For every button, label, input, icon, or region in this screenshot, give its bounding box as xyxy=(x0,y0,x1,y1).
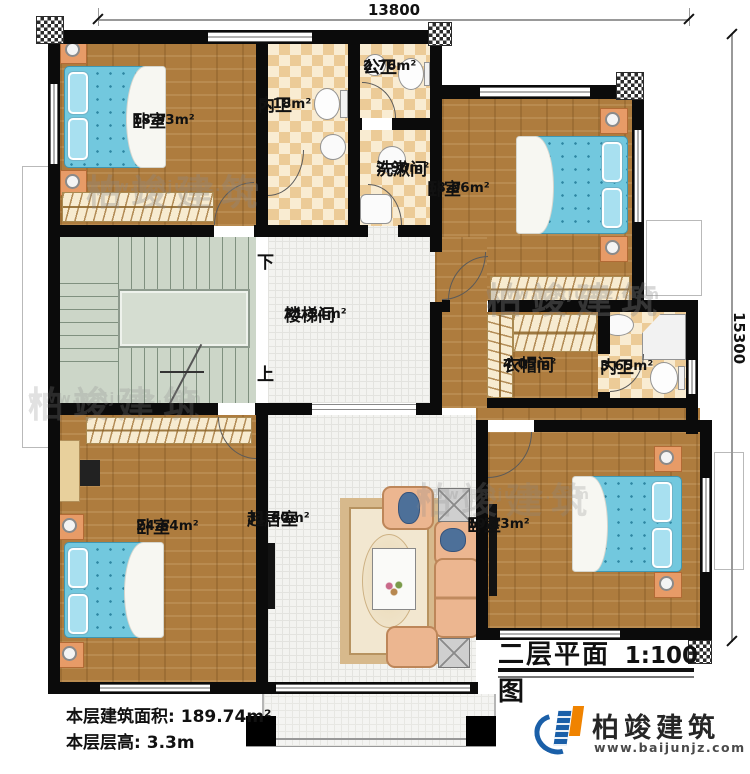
nightstand xyxy=(654,446,682,472)
floor-height-stats: 本层层高: 3.3m xyxy=(66,728,195,753)
nightstand xyxy=(600,236,628,262)
sink xyxy=(320,134,346,160)
sofa-main xyxy=(434,558,480,638)
bed-bl-pillow xyxy=(68,594,88,634)
room-area: 2.76m² xyxy=(363,58,416,74)
wall xyxy=(256,403,268,694)
bed-tr-pillow xyxy=(602,188,622,228)
title-underline-thick xyxy=(498,668,694,672)
room-area: 4.05m² xyxy=(503,356,556,372)
stair-down-label: 下 xyxy=(257,248,274,273)
bed-bl-sheet xyxy=(124,542,164,638)
drawing-scale: 1:100 xyxy=(625,643,698,669)
window xyxy=(634,130,642,222)
wall xyxy=(416,403,442,415)
room-area: 31.60m² xyxy=(247,510,310,526)
bed-br-pillow xyxy=(652,528,672,568)
logo-website: www.baijunjz.com xyxy=(594,740,746,755)
floor-stats: 本层建筑面积: 189.74m² xyxy=(66,702,272,727)
person xyxy=(440,528,466,552)
stats-area-label: 本层建筑面积: xyxy=(66,707,175,727)
wardrobe-tr xyxy=(490,276,630,303)
balcony-right-bottom xyxy=(714,452,744,570)
wall xyxy=(430,302,442,415)
table-flowers xyxy=(382,578,406,598)
sliding-door xyxy=(312,404,416,410)
room-area: 5.18m² xyxy=(258,96,311,112)
terrace-post-right xyxy=(466,716,496,746)
room-area: 24.64m² xyxy=(136,518,199,534)
stair-treads-left xyxy=(60,278,118,362)
floor-plan-canvas: 卧室 18.93m² 内卫 5.18m² 公卫 2.76m² 洗漱间 2.90m… xyxy=(0,0,750,774)
balcony-right-top xyxy=(646,220,702,296)
room-area: 18.93m² xyxy=(132,112,195,128)
window xyxy=(50,84,58,164)
corridor-south-floor xyxy=(476,408,700,420)
stair-treads-top xyxy=(118,237,256,289)
stats-height-label: 本层层高: xyxy=(66,733,141,753)
wall xyxy=(488,300,634,312)
window xyxy=(702,478,710,572)
bed-tr-pillow xyxy=(602,142,622,182)
stats-area-value: 189.74m² xyxy=(181,707,272,727)
dimension-top: 13800 xyxy=(344,1,444,19)
toilet-tank xyxy=(340,90,348,118)
bed-tl-pillow xyxy=(68,72,88,114)
nightstand xyxy=(600,108,628,134)
title-underline-thin xyxy=(498,676,694,678)
column-marker xyxy=(428,22,452,46)
wall xyxy=(398,225,442,237)
wall xyxy=(598,312,610,354)
stair-treads-bottom xyxy=(118,348,256,403)
armchair-bottom xyxy=(386,626,438,668)
side-table xyxy=(438,638,470,668)
bed-tl-pillow xyxy=(68,118,88,160)
wall xyxy=(256,30,268,237)
desk-computer xyxy=(80,460,100,486)
toilet-tank xyxy=(678,366,685,390)
nightstand xyxy=(58,642,84,668)
wall xyxy=(48,403,218,415)
toilet xyxy=(650,362,678,394)
side-table xyxy=(438,488,470,522)
stair-void xyxy=(118,289,250,348)
window xyxy=(688,360,696,394)
window xyxy=(208,32,312,42)
window xyxy=(276,684,470,692)
wall xyxy=(348,30,360,237)
stair-arrow xyxy=(160,371,204,373)
window xyxy=(100,684,210,692)
toilet xyxy=(314,88,340,120)
bed-br-sheet xyxy=(572,476,608,572)
wall xyxy=(48,225,214,237)
stats-height-value: 3.3m xyxy=(147,733,195,753)
balcony-left xyxy=(22,166,50,448)
wall xyxy=(254,225,368,237)
nightstand xyxy=(58,514,84,540)
bed-tr-sheet xyxy=(516,136,554,234)
room-area: 19.43m² xyxy=(467,516,530,532)
person xyxy=(398,492,420,524)
wall xyxy=(358,118,362,130)
wall xyxy=(392,118,432,130)
wall xyxy=(534,420,700,432)
column-marker xyxy=(616,72,644,100)
bed-br-pillow xyxy=(652,482,672,522)
bed-bl-pillow xyxy=(68,548,88,588)
window xyxy=(480,87,590,97)
wardrobe-cloak-top xyxy=(513,314,597,352)
wall xyxy=(442,300,450,312)
wardrobe-tl xyxy=(62,192,214,222)
wall xyxy=(487,398,698,408)
room-area: 2.90m² xyxy=(376,160,429,176)
dimension-right: 15300 xyxy=(730,312,748,364)
room-area: 3.65m² xyxy=(600,358,653,374)
dimension-line-top xyxy=(98,19,690,21)
column-marker xyxy=(36,16,64,44)
room-area: 31.54m² xyxy=(284,306,347,322)
nightstand xyxy=(654,572,682,598)
terrace-railing xyxy=(246,738,496,747)
stair-up-label: 上 xyxy=(257,360,274,385)
room-area: 18.06m² xyxy=(427,180,490,196)
